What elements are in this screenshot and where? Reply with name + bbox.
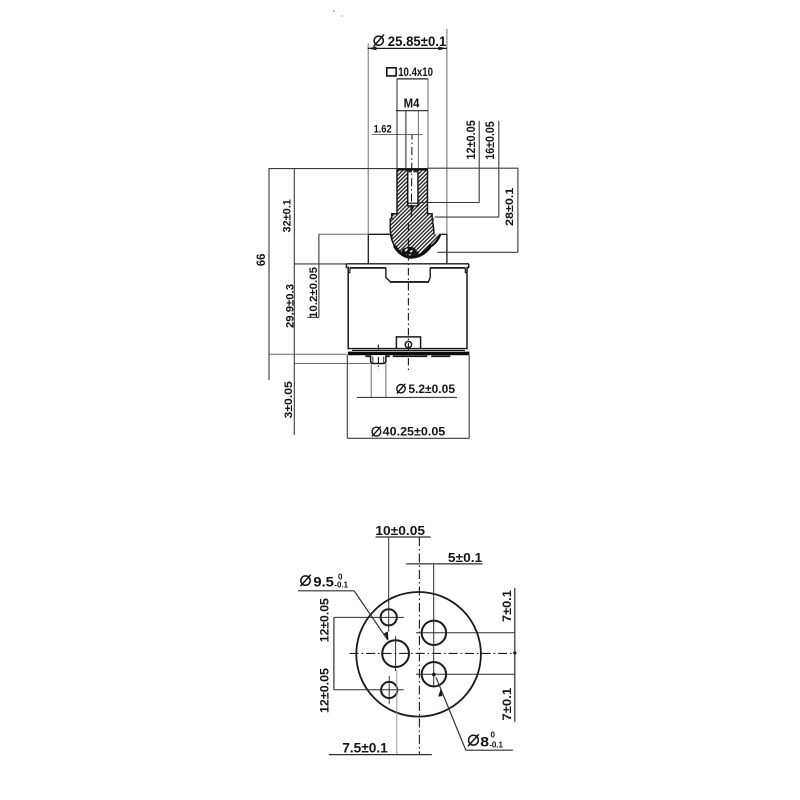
svg-text:16±0.05: 16±0.05 xyxy=(484,121,497,160)
svg-text:-0.1: -0.1 xyxy=(489,740,503,749)
svg-text:M4: M4 xyxy=(404,96,420,110)
svg-text:12±0.05: 12±0.05 xyxy=(319,598,332,643)
svg-text:32±0.1: 32±0.1 xyxy=(281,199,293,232)
svg-text:25.85±0.1: 25.85±0.1 xyxy=(388,34,447,49)
svg-text:10.2±0.05: 10.2±0.05 xyxy=(308,267,320,318)
svg-text:28±0.1: 28±0.1 xyxy=(504,188,516,226)
svg-text:10±0.05: 10±0.05 xyxy=(375,523,425,538)
svg-text:10.4x10: 10.4x10 xyxy=(398,65,433,79)
svg-text:3±0.05: 3±0.05 xyxy=(283,381,295,418)
svg-text:7±0.1: 7±0.1 xyxy=(500,688,514,721)
svg-text:-0.1: -0.1 xyxy=(334,581,348,590)
svg-text:1.62: 1.62 xyxy=(374,123,392,135)
svg-text:5±0.1: 5±0.1 xyxy=(448,551,482,565)
svg-text:66: 66 xyxy=(254,253,268,266)
svg-text:12±0.05: 12±0.05 xyxy=(465,120,478,160)
svg-text:40.25±0.05: 40.25±0.05 xyxy=(383,425,446,439)
svg-text:7.5±0.1: 7.5±0.1 xyxy=(342,740,388,756)
svg-text:29.9±0.3: 29.9±0.3 xyxy=(285,284,297,328)
svg-text:0: 0 xyxy=(491,730,496,739)
svg-text:9.5: 9.5 xyxy=(313,575,334,590)
svg-text:5.2±0.05: 5.2±0.05 xyxy=(408,384,455,396)
svg-text:7±0.1: 7±0.1 xyxy=(500,590,514,622)
svg-text:12±0.05: 12±0.05 xyxy=(319,667,332,713)
